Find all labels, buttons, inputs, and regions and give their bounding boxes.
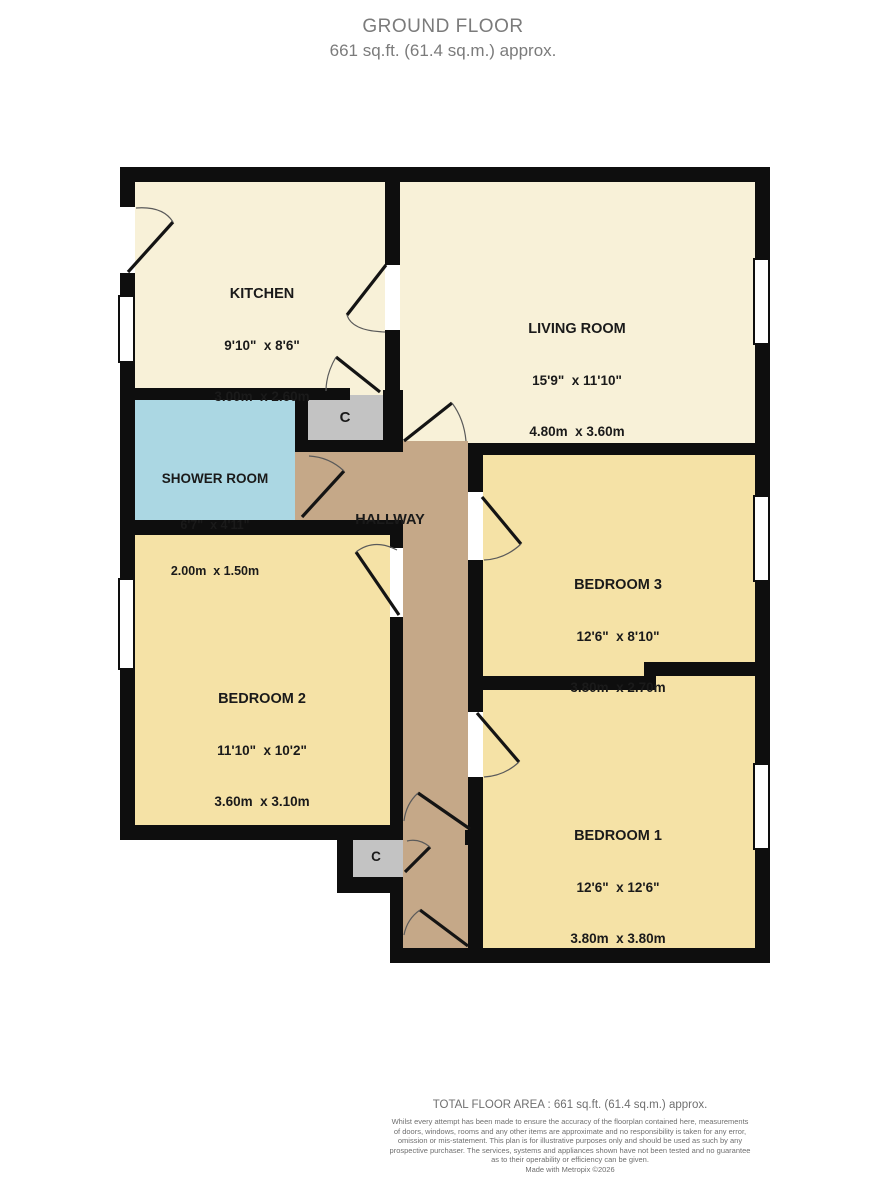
bedroom2-dims-imperial: 11'10" x 10'2" <box>214 742 309 759</box>
bedroom1-dims-imperial: 12'6" x 12'6" <box>570 879 665 896</box>
wall-bedroom2-right-seg2 <box>390 617 403 825</box>
floorplan-page: GROUND FLOOR 661 sq.ft. (61.4 sq.m.) app… <box>0 0 886 1177</box>
disclaimer-line: prospective purchaser. The services, sys… <box>262 1146 878 1156</box>
wall-kitchen-living-lower <box>385 330 400 392</box>
bedroom2-dims-metric: 3.60m x 3.10m <box>214 793 309 810</box>
hallway-area-doorway <box>403 441 468 454</box>
living-room-dims-metric: 4.80m x 3.60m <box>528 423 625 440</box>
bedroom1-name: BEDROOM 1 <box>570 828 665 845</box>
wall-left-seg2 <box>120 273 135 295</box>
wall-right-seg4 <box>755 850 770 963</box>
wall-bedroom1-left-seg2 <box>468 777 483 948</box>
disclaimer-line: Whilst every attempt has been made to en… <box>262 1117 878 1127</box>
page-title: GROUND FLOOR <box>0 16 886 38</box>
cupboard-bottom-label: C <box>371 849 381 864</box>
bedroom1-dims-metric: 3.80m x 3.80m <box>570 930 665 947</box>
wall-right-seg1 <box>755 167 770 258</box>
disclaimer-line: omission or mis-statement. This plan is … <box>262 1136 878 1146</box>
bedroom3-name: BEDROOM 3 <box>570 577 665 594</box>
wall-bedroom3-left-seg1 <box>468 455 483 492</box>
wall-cupboard-top-bottom <box>295 440 403 452</box>
page-subtitle: 661 sq.ft. (61.4 sq.m.) approx. <box>0 41 886 61</box>
bedroom2-label: BEDROOM 2 11'10" x 10'2" 3.60m x 3.10m <box>214 657 309 844</box>
living-room-window <box>753 258 770 345</box>
shower-room-dims-imperial: 6'7" x 4'11" <box>162 518 269 534</box>
wall-divider-extension <box>383 390 403 447</box>
wall-right-seg2 <box>755 345 770 495</box>
wall-doorstop-bedroom1 <box>465 830 483 845</box>
kitchen-dims-imperial: 9'10" x 8'6" <box>214 337 309 354</box>
wall-top <box>120 167 770 182</box>
wall-kitchen-living-upper <box>385 167 400 265</box>
footer: TOTAL FLOOR AREA : 661 sq.ft. (61.4 sq.m… <box>262 1099 878 1175</box>
wall-right-seg3 <box>755 582 770 763</box>
hallway-label: HALLWAY <box>355 478 425 563</box>
credit-line: Made with Metropix ©2026 <box>262 1165 878 1175</box>
bedroom2-name: BEDROOM 2 <box>214 691 309 708</box>
wall-bedroom1-left-seg1 <box>468 690 483 712</box>
kitchen-window <box>118 295 135 363</box>
bedroom3-window <box>753 495 770 582</box>
bedroom3-dims-imperial: 12'6" x 8'10" <box>570 628 665 645</box>
wall-bedroom3-left-seg2 <box>468 560 483 676</box>
plan-title: GROUND FLOOR 661 sq.ft. (61.4 sq.m.) app… <box>0 16 886 61</box>
hallway-area-corridor <box>403 520 468 948</box>
living-room-label: LIVING ROOM 15'9" x 11'10" 4.80m x 3.60m <box>528 287 625 474</box>
shower-room-dims-metric: 2.00m x 1.50m <box>162 564 269 580</box>
kitchen-name: KITCHEN <box>214 286 309 303</box>
wall-left-seg1 <box>120 167 135 207</box>
shower-room-label: SHOWER ROOM 6'7" x 4'11" 2.00m x 1.50m <box>162 440 269 611</box>
shower-room-name: SHOWER ROOM <box>162 471 269 487</box>
kitchen-label: KITCHEN 9'10" x 8'6" 3.00m x 2.60m <box>214 252 309 439</box>
bedroom2-window <box>118 578 135 670</box>
bedroom3-label: BEDROOM 3 12'6" x 8'10" 3.80m x 2.70m <box>570 543 665 730</box>
disclaimer-line: of doors, windows, rooms and any other i… <box>262 1127 878 1137</box>
cupboard-top-label: C <box>340 409 351 426</box>
bedroom1-window <box>753 763 770 850</box>
wall-left-seg4 <box>120 670 135 840</box>
hallway-name: HALLWAY <box>355 512 425 529</box>
living-room-dims-imperial: 15'9" x 11'10" <box>528 372 625 389</box>
total-floor-area: TOTAL FLOOR AREA : 661 sq.ft. (61.4 sq.m… <box>262 1099 878 1111</box>
kitchen-dims-metric: 3.00m x 2.60m <box>214 388 309 405</box>
bedroom3-dims-metric: 3.80m x 2.70m <box>570 679 665 696</box>
living-room-name: LIVING ROOM <box>528 321 625 338</box>
bedroom1-label: BEDROOM 1 12'6" x 12'6" 3.80m x 3.80m <box>570 794 665 981</box>
disclaimer-line: as to their operability or efficiency ca… <box>262 1155 878 1165</box>
